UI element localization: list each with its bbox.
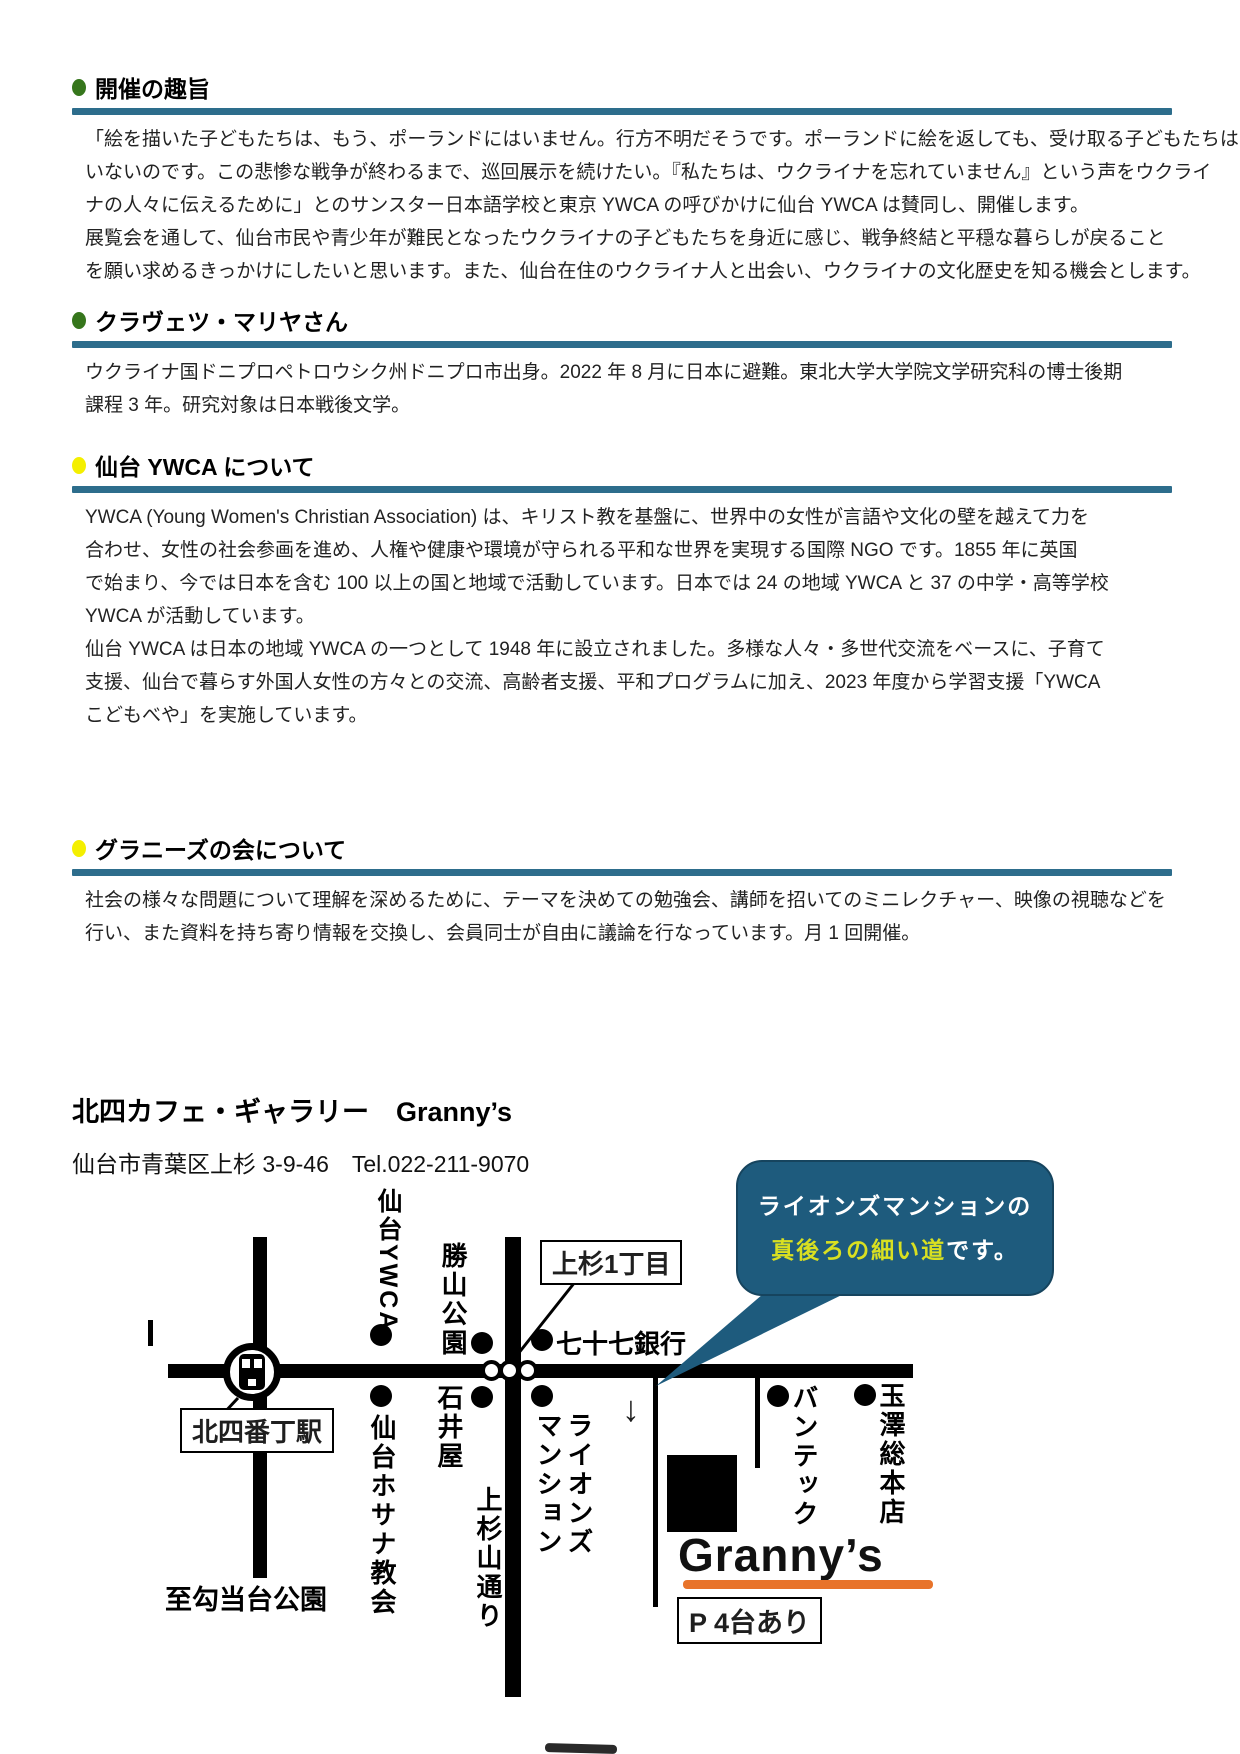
down-arrow-icon: ↓ bbox=[622, 1388, 640, 1430]
paragraph-line: ナの人々に伝えるために」とのサンスター日本語学校と東京 YWCA の呼びかけに仙… bbox=[85, 189, 1172, 222]
bubble-suffix: です。 bbox=[946, 1237, 1019, 1263]
bullet-icon bbox=[72, 840, 86, 857]
paragraph-line: YWCA (Young Women's Christian Associatio… bbox=[85, 501, 1172, 534]
section-heading: グラニーズの会について bbox=[72, 831, 1172, 865]
map-label-katsuyama-park: 勝山公園 bbox=[437, 1242, 468, 1362]
map-label-station: 北四番丁駅 bbox=[180, 1408, 334, 1453]
section-title: 開催の趣旨 bbox=[95, 70, 210, 104]
section-title: クラヴェツ・マリヤさん bbox=[95, 303, 348, 337]
bullet-icon bbox=[72, 457, 86, 474]
map-label-parking: P 4台あり bbox=[677, 1597, 822, 1644]
section-title: グラニーズの会について bbox=[95, 831, 346, 865]
body-paragraph: 「絵を描いた子どもたちは、もう、ポーランドにはいません。行方不明だそうです。ポー… bbox=[85, 123, 1172, 288]
map-label-kamisugiyama-dori: 上杉山通り bbox=[472, 1486, 503, 1638]
intersection-circle bbox=[517, 1360, 538, 1381]
body-paragraph: 社会の様々な問題について理解を深めるために、テーマを決めての勉強会、講師を招いて… bbox=[85, 884, 1172, 950]
flyer-page: 開催の趣旨 「絵を描いた子どもたちは、もう、ポーランドにはいません。行方不明だそ… bbox=[0, 0, 1240, 1754]
paragraph-line: 社会の様々な問題について理解を深めるために、テーマを決めての勉強会、講師を招いて… bbox=[85, 884, 1172, 917]
map-label-hosanna-church: 仙台ホサナ教会 bbox=[366, 1414, 397, 1622]
section-grannies: グラニーズの会について 社会の様々な問題について理解を深めるために、テーマを決め… bbox=[72, 831, 1172, 950]
paragraph-line: こどもべや」を実施しています。 bbox=[85, 699, 1172, 732]
speech-bubble: ライオンズマンションの 真後ろの細い道です。 bbox=[736, 1160, 1054, 1296]
poi-dot-tamazawa bbox=[854, 1384, 876, 1406]
map-label-kamisugi-1chome: 上杉1丁目 bbox=[540, 1240, 682, 1285]
bubble-highlight: 真後ろの細い道 bbox=[771, 1237, 946, 1263]
paragraph-line: 仙台 YWCA は日本の地域 YWCA の一つとして 1948 年に設立されまし… bbox=[85, 633, 1172, 666]
paragraph-line: 支援、仙台で暮らす外国人女性の方々との交流、高齢者支援、平和プログラムに加え、2… bbox=[85, 666, 1172, 699]
grannys-underline bbox=[683, 1580, 933, 1589]
access-map: 仙台YWCA 勝山公園 上杉1丁目 七十七銀行 北四番丁駅 石井屋 仙台ホサナ教… bbox=[120, 1160, 1120, 1754]
grannys-building-marker bbox=[667, 1455, 737, 1532]
map-label-bank: 七十七銀行 bbox=[556, 1324, 686, 1361]
paragraph-line: いないのです。この悲惨な戦争が終わるまで、巡回展示を続けたい。『私たちは、ウクラ… bbox=[85, 156, 1172, 189]
section-heading: 仙台 YWCA について bbox=[72, 448, 1172, 482]
map-label-kotodai-park: 至勾当台公園 bbox=[165, 1578, 327, 1617]
paragraph-line: 合わせ、女性の社会参画を進め、人権や健康や環境が守られる平和な世界を実現する国際… bbox=[85, 534, 1172, 567]
paragraph-line: 行い、また資料を持ち寄り情報を交換し、会員同士が自由に議論を行なっています。月 … bbox=[85, 917, 1172, 950]
grannys-map-name: Granny’s bbox=[678, 1528, 884, 1582]
map-label-ishiiya: 石井屋 bbox=[433, 1384, 464, 1476]
heading-divider bbox=[72, 108, 1172, 115]
heading-divider bbox=[72, 869, 1172, 876]
poi-dot-bank bbox=[531, 1329, 553, 1351]
paragraph-line: で始まり、今では日本を含む 100 以上の国と地域で活動しています。日本では 2… bbox=[85, 567, 1172, 600]
map-label-vantec: バンテック bbox=[788, 1384, 819, 1536]
body-paragraph: ウクライナ国ドニプロペトロウシク州ドニプロ市出身。2022 年 8 月に日本に避… bbox=[85, 356, 1172, 422]
paragraph-line: YWCA が活動しています。 bbox=[85, 600, 1172, 633]
map-label-lions-mansion: ライオンズマンション bbox=[528, 1412, 594, 1564]
poi-dot-katsuyama-park bbox=[471, 1332, 493, 1354]
bullet-icon bbox=[72, 79, 86, 96]
section-purpose: 開催の趣旨 「絵を描いた子どもたちは、もう、ポーランドにはいません。行方不明だそ… bbox=[72, 70, 1172, 288]
paragraph-line: 課程 3 年。研究対象は日本戦後文学。 bbox=[85, 389, 1172, 422]
poi-dot-vantec bbox=[767, 1385, 789, 1407]
section-heading: クラヴェツ・マリヤさん bbox=[72, 303, 1172, 337]
subway-station-icon bbox=[223, 1343, 281, 1401]
paragraph-line: 展覧会を通して、仙台市民や青少年が難民となったウクライナの子どもたちを身近に感じ… bbox=[85, 222, 1172, 255]
paragraph-line: を願い求めるきっかけにしたいと思います。また、仙台在住のウクライナ人と出会い、ウ… bbox=[85, 255, 1172, 288]
section-ywca: 仙台 YWCA について YWCA (Young Women's Christi… bbox=[72, 448, 1172, 732]
map-label-tamazawa: 玉澤総本店 bbox=[875, 1382, 906, 1534]
section-title: 仙台 YWCA について bbox=[95, 448, 315, 482]
body-paragraph: YWCA (Young Women's Christian Associatio… bbox=[85, 501, 1172, 732]
map-label-sendai-ywca: 仙台YWCA bbox=[372, 1188, 403, 1333]
venue-name: 北四カフェ・ギャラリー Granny’s bbox=[72, 1090, 529, 1129]
bullet-icon bbox=[72, 312, 86, 329]
poi-dot-lions-mansion bbox=[531, 1385, 553, 1407]
section-mariya: クラヴェツ・マリヤさん ウクライナ国ドニプロペトロウシク州ドニプロ市出身。202… bbox=[72, 303, 1172, 422]
paragraph-line: ウクライナ国ドニプロペトロウシク州ドニプロ市出身。2022 年 8 月に日本に避… bbox=[85, 356, 1172, 389]
poi-dot-hosanna-church bbox=[370, 1385, 392, 1407]
heading-divider bbox=[72, 486, 1172, 493]
paragraph-line: 「絵を描いた子どもたちは、もう、ポーランドにはいません。行方不明だそうです。ポー… bbox=[85, 123, 1172, 156]
heading-divider bbox=[72, 341, 1172, 348]
section-heading: 開催の趣旨 bbox=[72, 70, 1172, 104]
train-icon bbox=[239, 1354, 265, 1390]
bubble-line-1: ライオンズマンションの bbox=[758, 1184, 1033, 1228]
poi-dot-ishiiya bbox=[471, 1386, 493, 1408]
bubble-line-2: 真後ろの細い道です。 bbox=[771, 1228, 1019, 1272]
